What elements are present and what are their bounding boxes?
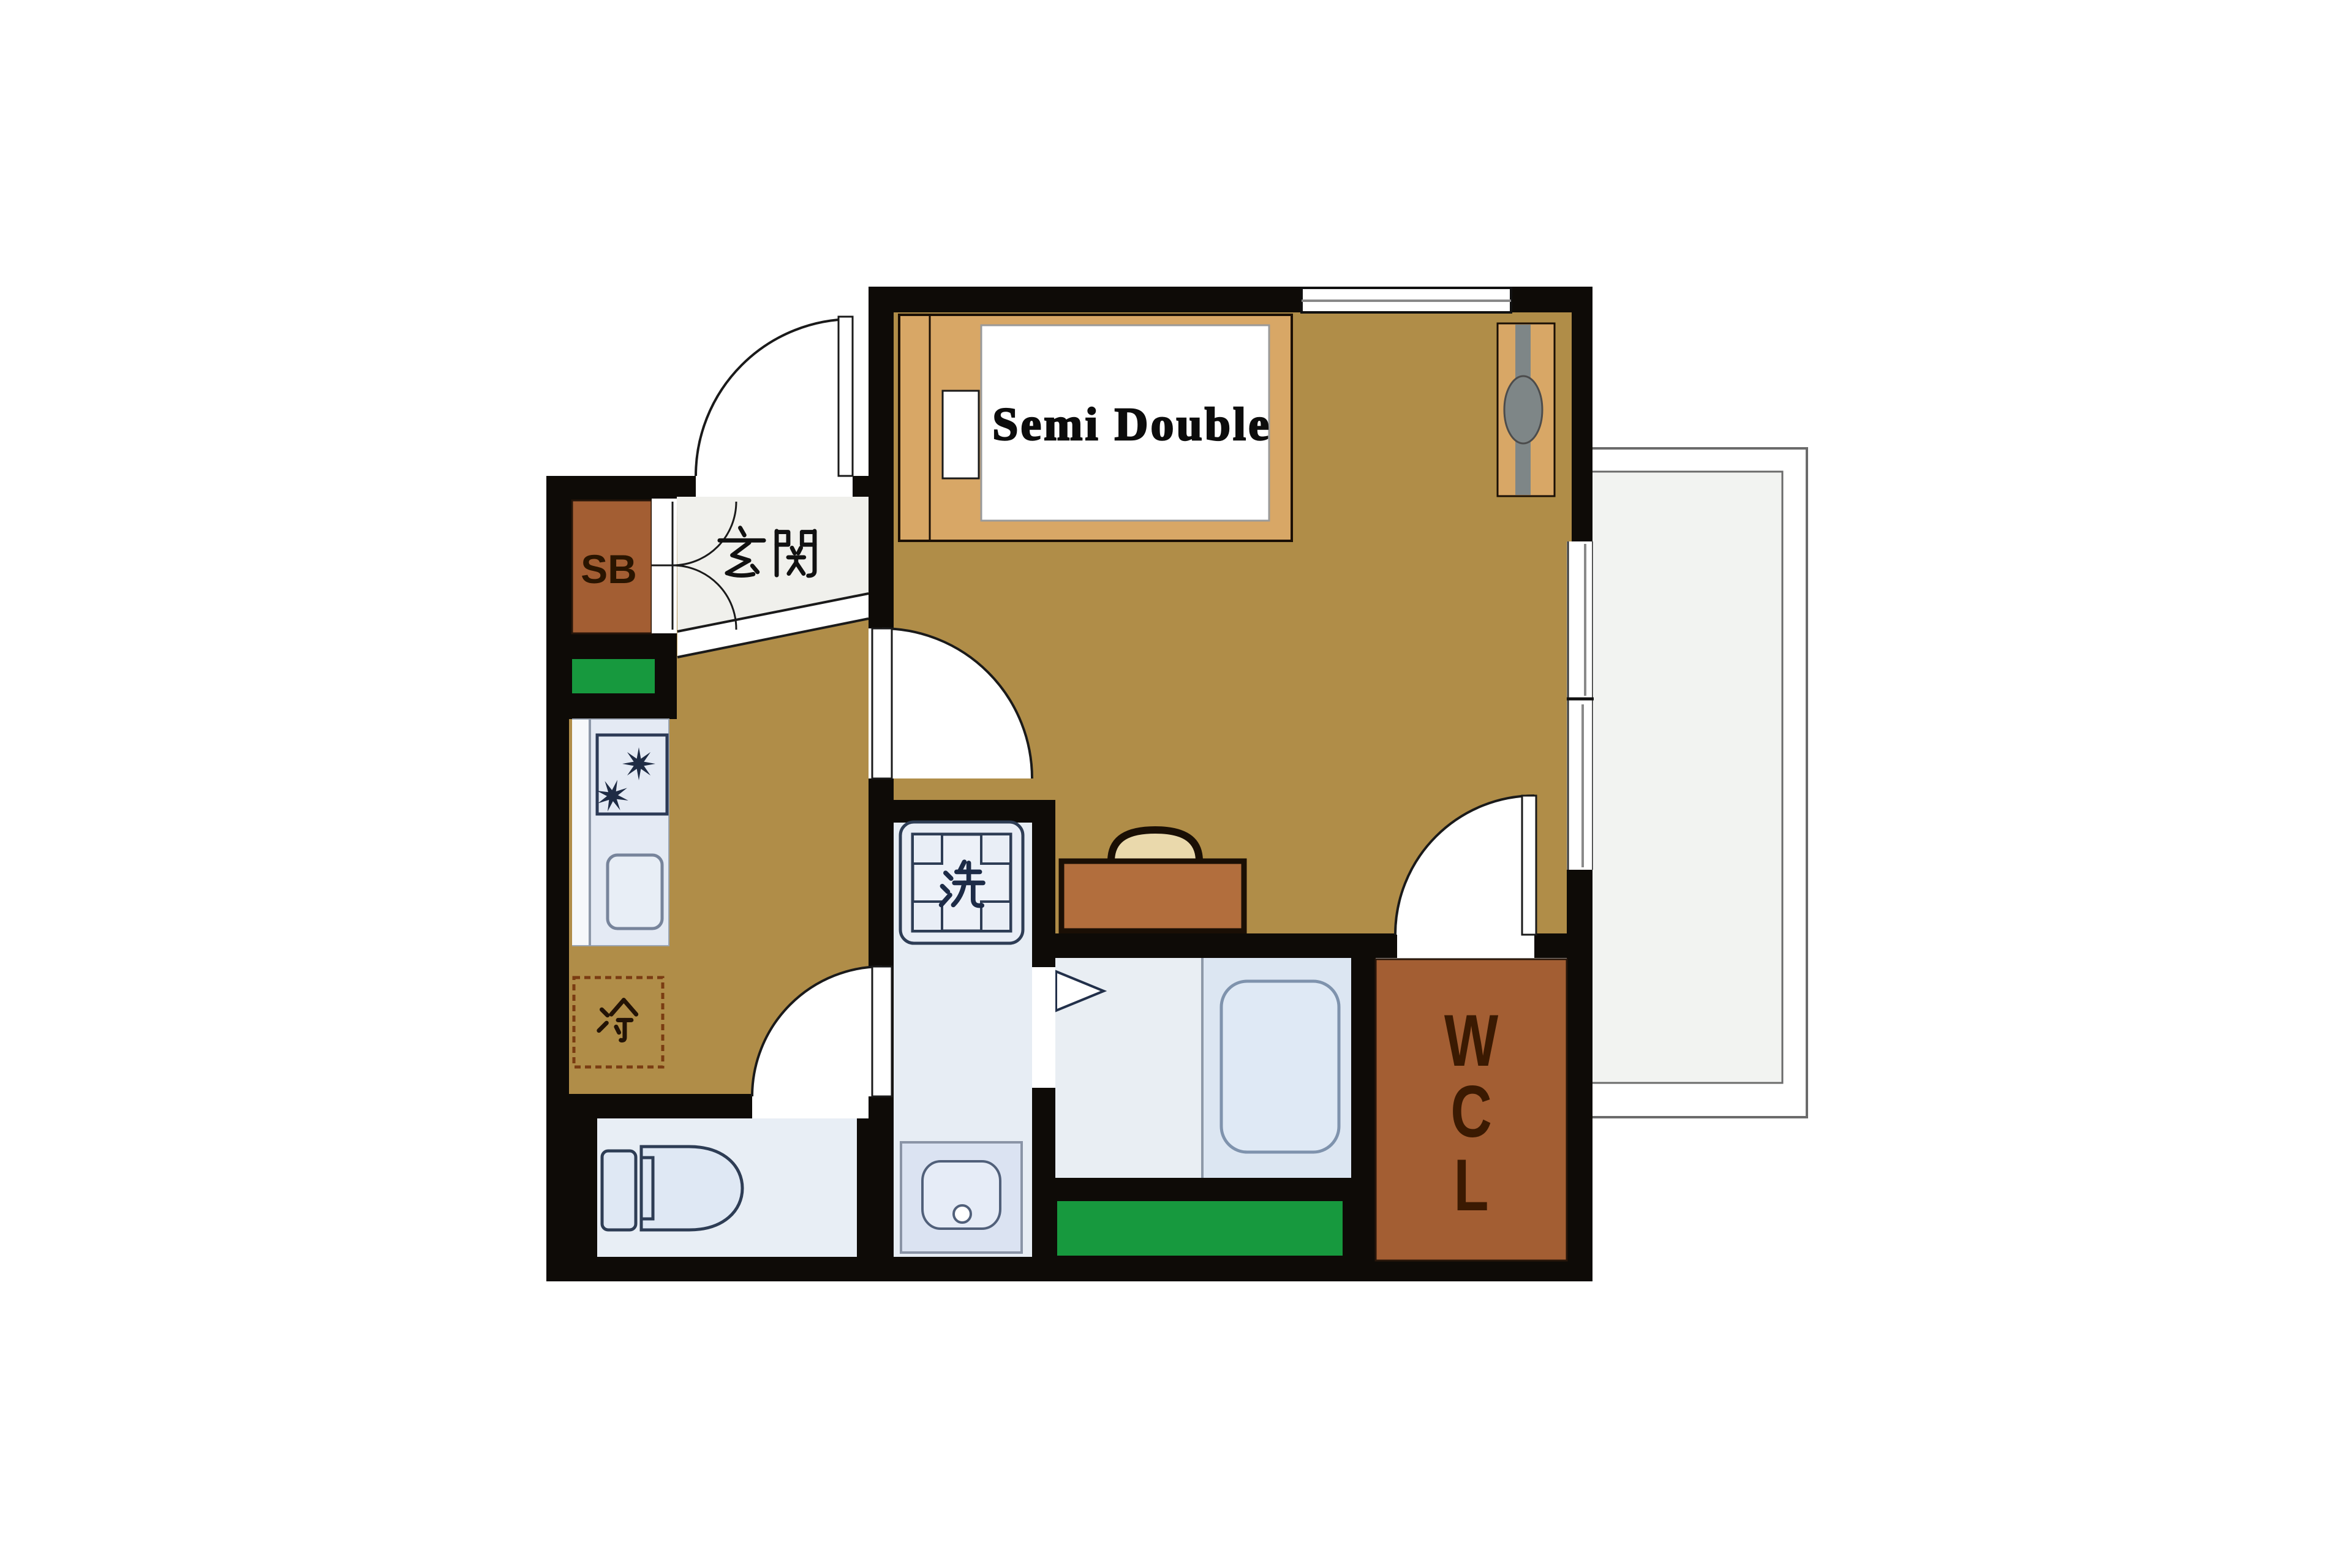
svg-text:L: L bbox=[1453, 1144, 1488, 1226]
svg-text:SB: SB bbox=[581, 546, 637, 592]
svg-text:C: C bbox=[1450, 1071, 1492, 1153]
svg-text:W: W bbox=[1444, 1000, 1499, 1082]
svg-text:Semi Double: Semi Double bbox=[992, 399, 1272, 450]
